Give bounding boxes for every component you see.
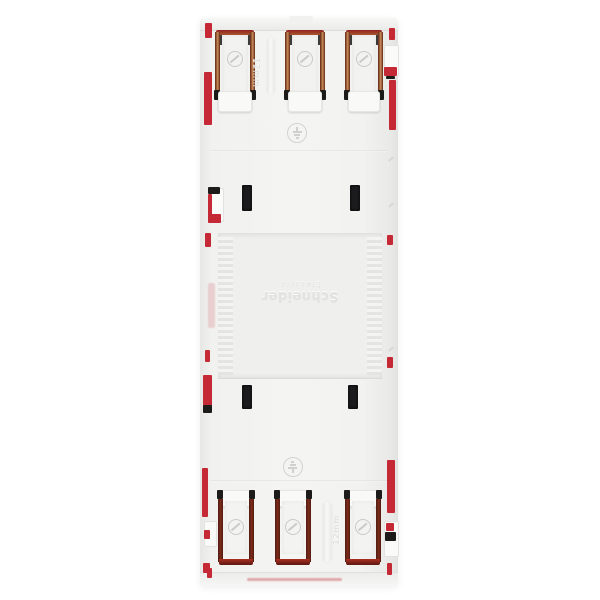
red-edge-bar <box>387 460 395 513</box>
brand-line1: Schneider <box>218 288 382 302</box>
bottom-cap <box>200 572 398 586</box>
clamp-tongue <box>222 35 248 94</box>
mould-tick <box>388 202 394 207</box>
red-clip-block <box>384 67 397 76</box>
clamp-corner-mark <box>376 490 382 499</box>
clamp-pad <box>348 91 380 112</box>
red-edge-bar <box>204 72 212 125</box>
busbar-device: 12mm Schneider Electric <box>200 18 398 586</box>
centre-panel: Schneider Electric <box>218 233 382 379</box>
red-seam-line <box>247 578 342 581</box>
photo-canvas: 12mm Schneider Electric <box>0 0 600 600</box>
red-edge-marker <box>205 23 212 38</box>
red-edge-bar <box>389 80 396 130</box>
clamp-leg <box>345 499 350 562</box>
screw-head-icon <box>355 519 371 535</box>
clamp-tongue <box>352 35 376 94</box>
top-cap-tab <box>289 16 313 23</box>
clamp-corner-mark <box>217 490 223 499</box>
mould-tick <box>388 346 394 351</box>
divider-ridge-top <box>267 38 275 94</box>
clamp-bottom-bar <box>276 559 310 565</box>
red-clip-block <box>386 523 394 531</box>
red-edge-bar <box>202 468 208 517</box>
brand-line2: Electric <box>218 280 382 288</box>
clamp-leg <box>306 499 311 562</box>
clamp-leg <box>320 32 325 96</box>
red-edge-marker <box>205 233 211 247</box>
grip-ribs-left <box>218 237 233 375</box>
red-edge-marker <box>387 235 393 245</box>
top-terminal-1 <box>215 30 255 110</box>
screw-head-icon <box>356 51 372 67</box>
pitch-label-top: 12mm <box>252 58 261 88</box>
clamp-tongue <box>282 501 304 554</box>
clamp-leg <box>249 499 254 562</box>
brand-logo-embossed: Schneider Electric <box>218 280 382 302</box>
screw-head-icon <box>228 519 244 535</box>
moulding-step-bottom <box>210 480 388 482</box>
mounting-slot <box>348 385 358 409</box>
clamp-corner-mark <box>274 490 280 499</box>
screw-head-icon <box>297 51 313 67</box>
mounting-slot <box>242 385 252 409</box>
red-edge-marker <box>387 357 393 368</box>
red-edge-marker <box>207 568 212 578</box>
clamp-corner-mark <box>249 490 255 499</box>
clamp-bottom-bar <box>346 559 380 565</box>
moulding-step-top <box>210 150 388 152</box>
clip-black-mark <box>208 187 220 194</box>
red-clip-block <box>208 214 221 223</box>
clamp-tongue <box>292 35 318 94</box>
screw-head-icon <box>285 519 301 535</box>
clamp-bottom-bar <box>219 559 253 565</box>
grip-ribs-right <box>367 237 382 375</box>
red-edge-bar <box>203 375 212 406</box>
red-clip-edge <box>208 194 212 216</box>
top-terminal-3 <box>345 30 383 110</box>
earth-ground-icon-bottom <box>283 457 303 477</box>
clamp-corner-mark <box>306 490 312 499</box>
red-edge-marker <box>389 28 395 40</box>
clamp-leg <box>275 499 280 562</box>
clip-black-mark <box>386 76 395 79</box>
red-edge-marker <box>204 530 210 539</box>
mould-tick <box>388 156 394 161</box>
clamp-tongue <box>352 501 374 554</box>
bottom-terminal-2 <box>275 490 311 565</box>
clamp-pad <box>218 91 252 112</box>
clamp-leg <box>378 32 383 96</box>
mounting-slot <box>242 185 252 211</box>
clamp-tongue <box>225 501 247 554</box>
clip-black-mark <box>385 532 396 541</box>
clip-black-mark <box>203 405 212 413</box>
earth-ground-icon-top <box>287 123 307 143</box>
divider-ridge-bottom <box>323 502 332 562</box>
bottom-terminal-3 <box>345 490 381 565</box>
clamp-corner-mark <box>344 490 350 499</box>
red-reflection <box>208 283 215 328</box>
clamp-leg <box>218 499 223 562</box>
mounting-slot <box>350 185 360 211</box>
clamp-leg <box>376 499 381 562</box>
red-edge-marker <box>205 350 210 362</box>
bottom-terminal-1 <box>218 490 254 565</box>
red-edge-marker <box>387 563 392 575</box>
pitch-label-bottom: 12mm <box>332 515 341 545</box>
top-terminal-2 <box>285 30 325 110</box>
screw-head-icon <box>227 51 243 67</box>
clamp-pad <box>288 91 322 112</box>
